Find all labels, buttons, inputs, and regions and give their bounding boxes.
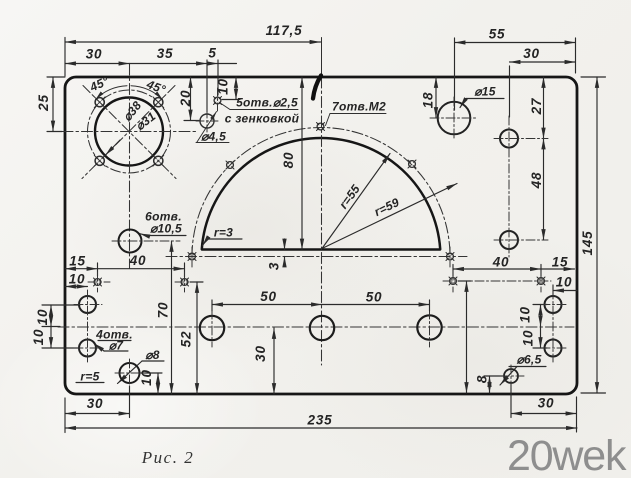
svg-text:117,5: 117,5	[266, 23, 303, 38]
svg-text:r=5: r=5	[80, 370, 99, 384]
svg-text:⌀10,5: ⌀10,5	[150, 222, 182, 236]
svg-text:Рис. 2: Рис. 2	[141, 448, 194, 467]
svg-text:r=59: r=59	[372, 195, 402, 219]
svg-text:50: 50	[260, 289, 277, 304]
svg-text:10: 10	[69, 272, 86, 287]
svg-text:5отв.⌀2,5: 5отв.⌀2,5	[236, 96, 298, 110]
svg-text:⌀4,5: ⌀4,5	[201, 130, 226, 144]
svg-text:40: 40	[492, 255, 510, 270]
svg-text:55: 55	[489, 27, 506, 42]
svg-text:10: 10	[139, 369, 154, 386]
svg-text:20: 20	[178, 90, 193, 108]
svg-text:30: 30	[538, 396, 555, 411]
svg-text:5: 5	[208, 46, 216, 61]
svg-text:15: 15	[69, 254, 86, 269]
svg-text:10: 10	[556, 275, 573, 290]
svg-text:52: 52	[179, 331, 194, 348]
svg-text:50: 50	[366, 290, 383, 305]
svg-text:r=3: r=3	[214, 226, 233, 240]
svg-text:40: 40	[129, 253, 147, 268]
svg-text:48: 48	[529, 172, 544, 190]
svg-text:45°: 45°	[144, 77, 168, 97]
svg-text:10: 10	[35, 309, 50, 326]
svg-text:15: 15	[552, 255, 569, 270]
svg-text:⌀15: ⌀15	[474, 85, 495, 99]
svg-text:35: 35	[157, 46, 174, 61]
svg-text:7отв.М2: 7отв.М2	[332, 100, 386, 114]
svg-text:10: 10	[31, 329, 46, 346]
svg-text:25: 25	[36, 94, 51, 112]
svg-text:8: 8	[475, 375, 490, 383]
svg-text:с зенковкой: с зенковкой	[225, 112, 300, 126]
svg-text:⌀8: ⌀8	[145, 348, 160, 362]
svg-text:30: 30	[523, 46, 540, 61]
svg-text:80: 80	[281, 152, 296, 169]
svg-text:30: 30	[253, 345, 268, 362]
svg-text:18: 18	[421, 92, 436, 109]
svg-text:⌀6,5: ⌀6,5	[516, 353, 541, 367]
svg-text:10: 10	[521, 330, 536, 347]
svg-text:⌀7: ⌀7	[109, 339, 125, 353]
svg-text:27: 27	[529, 97, 544, 115]
svg-text:10: 10	[518, 306, 533, 323]
svg-text:20wek: 20wek	[507, 432, 627, 478]
svg-text:10: 10	[216, 78, 231, 95]
svg-text:70: 70	[156, 302, 171, 319]
svg-text:30: 30	[86, 47, 103, 62]
svg-text:145: 145	[580, 231, 595, 256]
svg-text:235: 235	[307, 413, 333, 428]
svg-text:30: 30	[87, 396, 104, 411]
svg-text:3: 3	[267, 262, 282, 270]
